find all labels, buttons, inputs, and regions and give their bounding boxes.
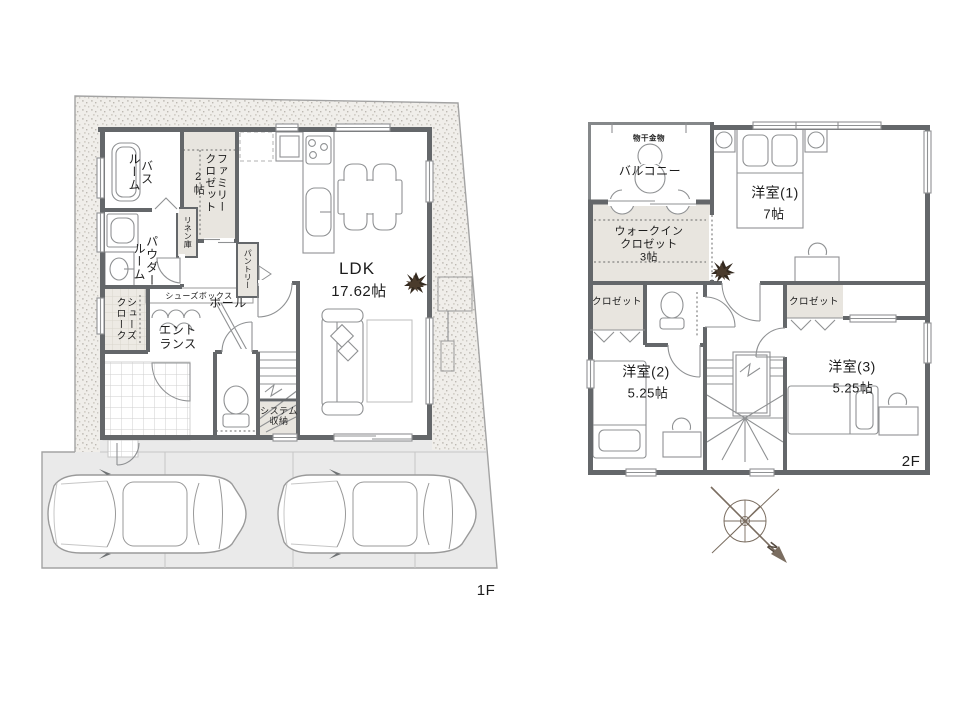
balcony-label: バルコニー [619,164,681,178]
floor2-tag: 2F [902,453,921,471]
bifold-door-mark [815,320,835,330]
powder-room-label: パウダー ルーム [132,235,157,287]
room2-label: 洋室(2) [622,364,670,381]
hall-label: ホール [209,296,247,310]
vanity-sink [105,252,134,286]
room2-size-label: 5.25帖 [628,385,669,400]
desk-room3 [879,393,918,435]
bifold-door-mark [594,332,614,342]
floor1-tag: 1F [477,582,496,600]
ldk-label: LDK [339,259,375,279]
pantry-label: パントリー [243,249,251,289]
car-1 [48,469,246,559]
closet-left-label: クロゼット [592,296,642,307]
toilet-2f [660,292,697,338]
bifold-door-mark [791,320,811,330]
closet-right-label: クロゼット [789,296,839,307]
entrance-label: エント ランス [159,323,197,351]
bifold-door-mark [620,332,640,342]
desk-room1 [795,243,839,283]
kitchen-cupboard [276,132,303,161]
stairs-2f [707,352,783,462]
entrance-porch-tile [103,362,190,440]
kitchen-counter [303,131,334,253]
car-2 [278,469,476,559]
laundry-hardware-label: 物干金物 [633,135,665,144]
floor-plan-canvas: バス ルーム ファミリー クロゼット 2帖 リネン庫 パウダー ルーム パントリ… [0,0,960,701]
room3-label: 洋室(3) [828,359,876,376]
family-closet-label: ファミリー クロゼット 2帖 [192,153,227,213]
ldk-size-label: 17.62帖 [331,283,387,301]
linen-storage-label: リネン庫 [183,216,191,248]
bath-room-label: バス ルーム [127,153,152,192]
walk-in-closet-label: ウォークイン クロゼット 3帖 [615,226,684,265]
room1-size-label: 7帖 [761,206,786,221]
room1-label: 洋室(1) [749,185,801,202]
porch-step [108,440,138,457]
shoes-cloak-label: シューズ クローク [114,297,135,341]
system-storage-label: システム 収納 [260,407,298,427]
desk-room2 [663,418,701,457]
room3-size-label: 5.25帖 [833,380,874,395]
